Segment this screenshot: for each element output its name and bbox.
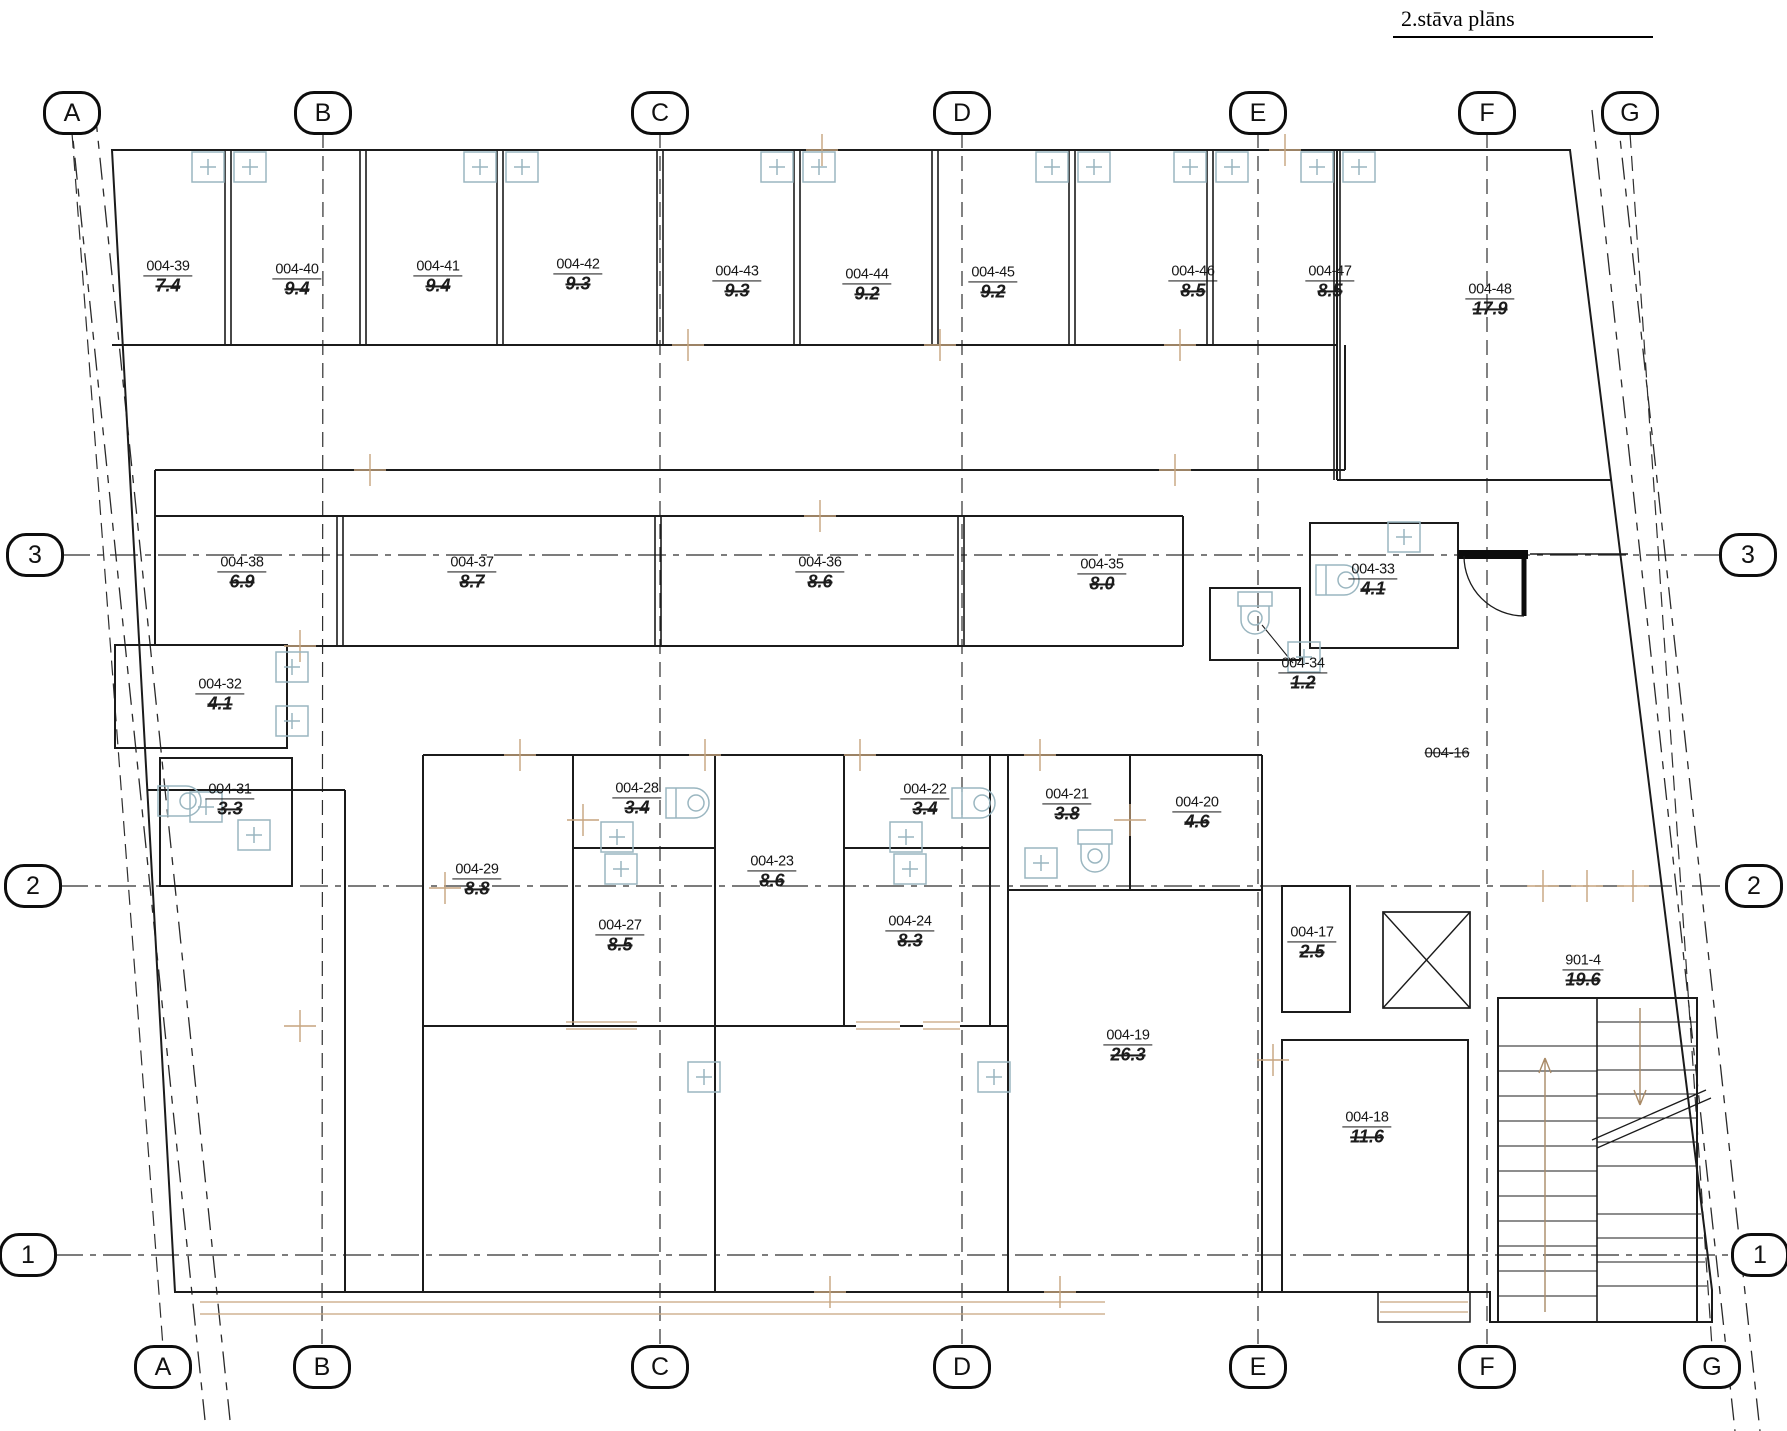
radiator-icon — [464, 152, 496, 182]
radiator-icon — [1216, 152, 1248, 182]
entrance-door — [1458, 550, 1528, 616]
dim-tick — [354, 454, 386, 486]
grid-lines — [55, 133, 1735, 1347]
radiator-icon — [978, 1062, 1010, 1092]
radiator-icon — [506, 152, 538, 182]
top-room-partitions — [225, 150, 1340, 480]
radiator-icon — [1025, 848, 1057, 878]
hatch-strips — [200, 1022, 1468, 1314]
fixtures-layer — [158, 152, 1420, 1092]
dim-tick — [804, 500, 836, 532]
dim-tick — [1617, 870, 1649, 902]
radiator-icon — [803, 152, 835, 182]
boiler-icon — [1316, 565, 1359, 595]
radiator-icon — [894, 854, 926, 884]
dim-tick — [806, 134, 838, 166]
grid-column-line-A — [72, 133, 163, 1347]
radiator-icon — [1288, 642, 1320, 672]
row3-partitions — [337, 516, 964, 646]
dim-tick — [689, 739, 721, 771]
outer-wall — [112, 150, 1712, 1322]
radiator-icon — [238, 820, 270, 850]
dimension-ticks — [284, 134, 1649, 1308]
dim-tick — [1044, 1276, 1076, 1308]
radiator-icon — [192, 152, 224, 182]
floor-plan-drawing — [0, 0, 1787, 1431]
grid-column-line-G — [1630, 133, 1712, 1347]
shaft — [1383, 912, 1470, 1008]
radiator-icon — [1174, 152, 1206, 182]
radiator-icon — [1388, 522, 1420, 552]
radiator-icon — [1301, 152, 1333, 182]
dim-tick — [284, 1010, 316, 1042]
stair-direction-arrows — [1539, 1008, 1646, 1312]
dim-tick — [1024, 739, 1056, 771]
walls — [112, 150, 1712, 1322]
dim-tick — [1114, 804, 1146, 836]
dim-tick — [1527, 870, 1559, 902]
dim-tick — [1269, 134, 1301, 166]
radiator-icon — [605, 854, 637, 884]
dim-tick — [1571, 870, 1603, 902]
boiler-icon — [952, 788, 995, 818]
dim-tick — [429, 872, 461, 904]
radiator-icon — [761, 152, 793, 182]
dim-tick — [1164, 329, 1196, 361]
floor-plan-canvas: 2.stāva plāns AABBCCDDEEFFGG332211004-39… — [0, 0, 1787, 1431]
dim-tick — [504, 739, 536, 771]
toilet-icon — [1078, 830, 1112, 872]
boiler-icon — [666, 788, 709, 818]
radiator-icon — [1078, 152, 1110, 182]
grid-column-line-B — [322, 133, 323, 1347]
site-boundary-lines — [70, 110, 1760, 1431]
staircase — [1498, 998, 1711, 1322]
radiator-icon — [276, 652, 308, 682]
door-swing-arc — [1464, 556, 1524, 616]
radiator-icon — [234, 152, 266, 182]
dim-tick — [284, 630, 316, 662]
radiator-icon — [1036, 152, 1068, 182]
dim-tick — [814, 1276, 846, 1308]
radiator-icon — [276, 706, 308, 736]
radiator-icon — [1343, 152, 1375, 182]
dim-tick — [567, 804, 599, 836]
dim-tick — [1159, 454, 1191, 486]
dim-tick — [924, 329, 956, 361]
toilet-icon — [1238, 592, 1272, 634]
hatch-box — [1378, 1292, 1470, 1322]
dim-tick — [672, 329, 704, 361]
dim-tick — [844, 739, 876, 771]
